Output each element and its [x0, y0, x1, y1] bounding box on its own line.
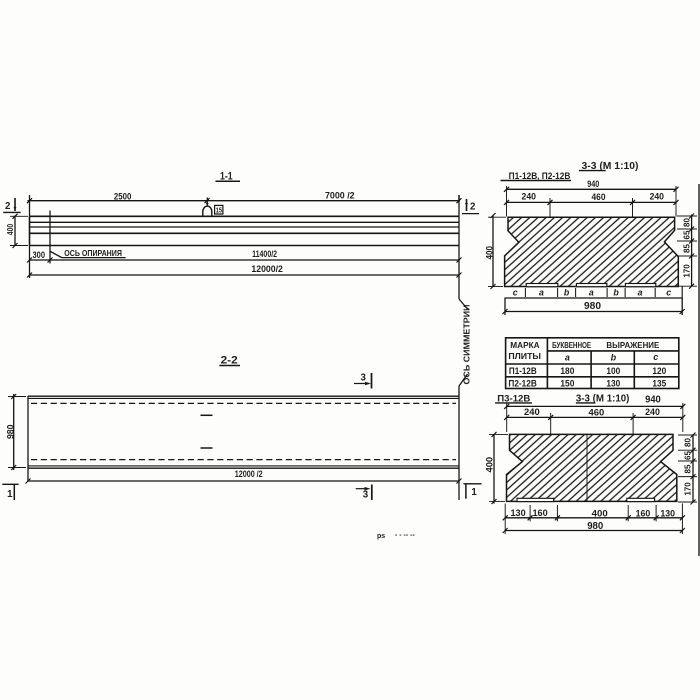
svg-text:240: 240	[650, 191, 664, 202]
svg-text:3: 3	[361, 373, 367, 384]
svg-text:170: 170	[684, 482, 693, 496]
svg-text:130: 130	[511, 507, 526, 518]
svg-text:160: 160	[636, 508, 651, 519]
svg-text:15: 15	[216, 206, 222, 215]
svg-text:85: 85	[682, 244, 691, 253]
svg-text:c: c	[513, 287, 518, 297]
svg-text:a: a	[638, 287, 643, 297]
svg-text:12000 /2: 12000 /2	[235, 468, 263, 479]
svg-text:c: c	[666, 287, 671, 297]
svg-text:a: a	[589, 287, 594, 297]
svg-text:- - -- --: - - -- --	[395, 532, 415, 539]
svg-text:240: 240	[522, 191, 537, 202]
svg-text:85: 85	[684, 464, 693, 473]
svg-text:240: 240	[645, 406, 660, 417]
svg-text:130: 130	[660, 508, 675, 519]
svg-text:180: 180	[560, 366, 574, 377]
svg-text:400: 400	[485, 457, 495, 473]
svg-text:170: 170	[682, 264, 691, 278]
svg-text:130: 130	[606, 379, 620, 390]
svg-text:940: 940	[587, 178, 599, 189]
svg-text:240: 240	[524, 406, 540, 417]
svg-text:7000 /2: 7000 /2	[325, 189, 355, 200]
svg-text:980: 980	[584, 301, 601, 312]
svg-text:65: 65	[682, 230, 691, 239]
svg-text:160: 160	[533, 507, 548, 518]
svg-text:1: 1	[471, 487, 477, 498]
svg-text:150: 150	[560, 378, 574, 389]
svg-text:П3-12В: П3-12В	[497, 392, 530, 403]
svg-text:2500: 2500	[114, 190, 131, 201]
svg-text:400: 400	[6, 223, 15, 235]
svg-text:П1-12В, П2-12В: П1-12В, П2-12В	[509, 171, 571, 181]
svg-text:100: 100	[606, 366, 620, 377]
svg-text:a: a	[539, 287, 544, 297]
svg-text:3-3 (М 1:10): 3-3 (М 1:10)	[582, 161, 639, 172]
svg-text:a: a	[565, 353, 570, 363]
svg-text:1: 1	[7, 489, 13, 500]
svg-text:ОСЬ СИММЕТРИИ: ОСЬ СИММЕТРИИ	[461, 305, 471, 385]
svg-text:БУКВЕННОЕ: БУКВЕННОЕ	[552, 340, 591, 350]
svg-text:П1-12В: П1-12В	[509, 366, 537, 377]
svg-text:ВЫРАЖЕНИЕ: ВЫРАЖЕНИЕ	[606, 340, 659, 350]
svg-text:80: 80	[682, 218, 691, 227]
svg-text:ОСЬ ОПИРАНИЯ: ОСЬ ОПИРАНИЯ	[64, 248, 122, 258]
svg-text:940: 940	[645, 395, 661, 406]
svg-text:П2-12В: П2-12В	[508, 379, 536, 390]
svg-text:120: 120	[652, 366, 666, 377]
svg-text:3-3 (М 1:10): 3-3 (М 1:10)	[576, 393, 630, 404]
svg-text:400: 400	[592, 507, 608, 518]
svg-text:460: 460	[592, 191, 606, 202]
svg-text:2-2: 2-2	[221, 355, 238, 367]
svg-text:460: 460	[589, 406, 605, 417]
svg-text:МАРКА: МАРКА	[510, 340, 539, 350]
svg-text:300: 300	[33, 250, 46, 260]
svg-text:b: b	[611, 353, 617, 363]
svg-text:80: 80	[684, 438, 693, 447]
svg-text:12000/2: 12000/2	[251, 263, 283, 274]
svg-text:400: 400	[485, 246, 495, 259]
svg-text:3: 3	[363, 489, 369, 500]
svg-text:65: 65	[684, 451, 693, 460]
svg-text:980: 980	[587, 521, 604, 532]
svg-text:c: c	[653, 352, 658, 362]
svg-text:2: 2	[470, 202, 475, 213]
svg-text:b: b	[564, 287, 570, 297]
svg-text:980: 980	[6, 425, 16, 440]
svg-text:ps: ps	[377, 533, 385, 540]
svg-text:2: 2	[5, 201, 10, 212]
svg-text:ПЛИТЫ: ПЛИТЫ	[508, 351, 541, 361]
svg-text:1-1: 1-1	[220, 170, 233, 182]
svg-text:135: 135	[652, 379, 666, 390]
svg-text:b: b	[613, 287, 619, 297]
svg-text:11400/2: 11400/2	[252, 248, 277, 259]
